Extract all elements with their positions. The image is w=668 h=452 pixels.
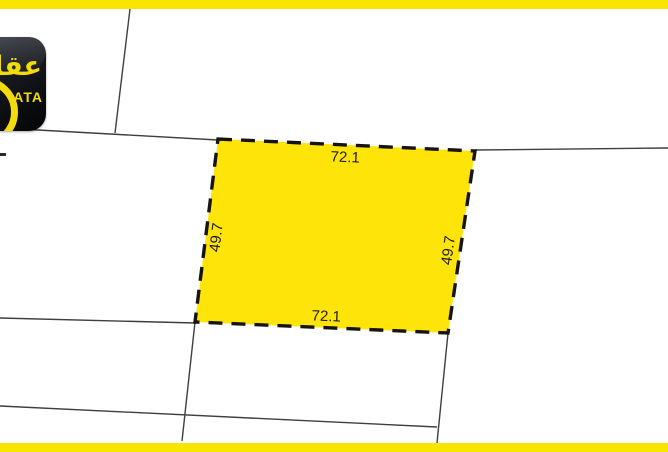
- boundary-line-upper-right: [475, 148, 668, 150]
- parcel-dimension-top: 72.1: [330, 148, 360, 166]
- boundary-line-lower-horizontal: [0, 406, 437, 427]
- boundary-line-lower-left-vertical: [182, 322, 195, 441]
- logo-arabic-text: عقارتا: [0, 53, 42, 80]
- parcel-map-view[interactable]: 72.1 72.1 49.7 49.7 عقارتا ATA: [0, 0, 668, 452]
- bottom-yellow-bar: [0, 443, 668, 452]
- parcel-dimension-bottom: 72.1: [311, 307, 341, 325]
- boundary-line-lower-right-vertical: [437, 333, 448, 443]
- map-canvas[interactable]: 72.1 72.1 49.7 49.7: [0, 0, 668, 452]
- parcel-dimension-left: 49.7: [206, 222, 226, 253]
- boundary-line-upper-left: [20, 129, 218, 140]
- clipped-edge-mark: [0, 153, 6, 156]
- boundary-line-mid-left: [0, 318, 196, 323]
- highlighted-parcel[interactable]: [195, 139, 475, 333]
- boundary-line-diagonal-top-left: [115, 9, 130, 133]
- logo-latin-text: ATA: [13, 89, 43, 105]
- aqarata-logo: عقارتا ATA: [0, 37, 46, 131]
